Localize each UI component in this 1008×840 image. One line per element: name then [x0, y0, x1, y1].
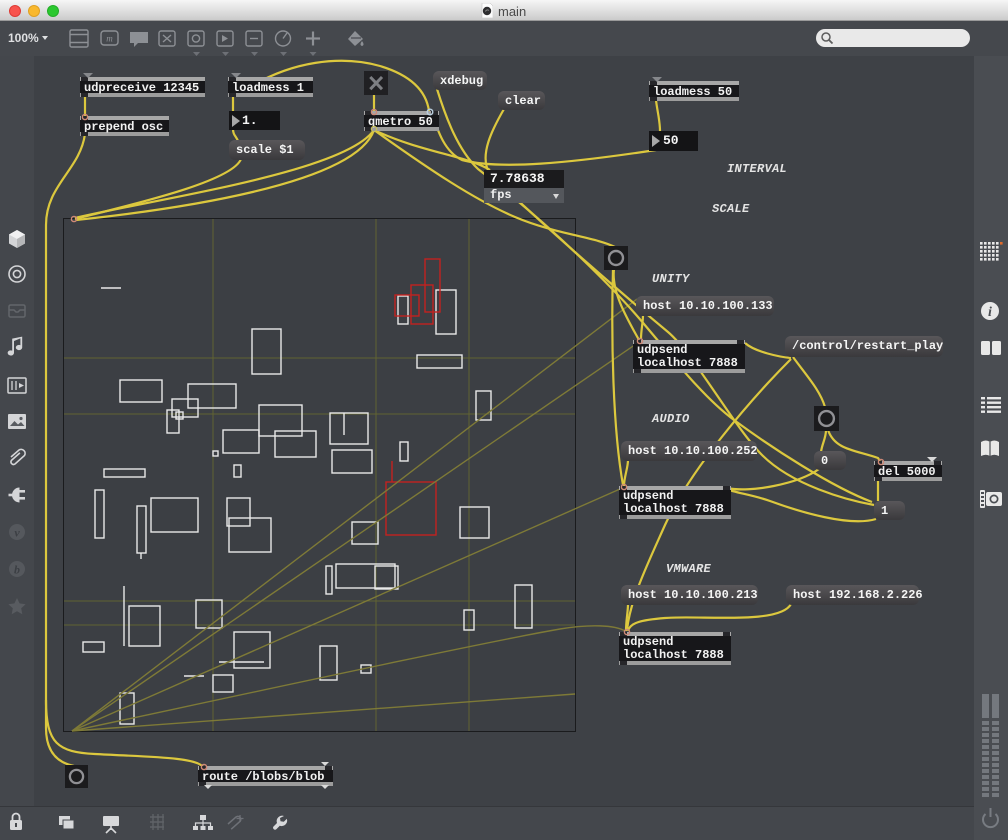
- svg-text:b: b: [14, 563, 20, 577]
- svg-text:v: v: [14, 526, 20, 540]
- svg-text:i: i: [988, 305, 992, 320]
- svg-text:m: m: [106, 34, 113, 44]
